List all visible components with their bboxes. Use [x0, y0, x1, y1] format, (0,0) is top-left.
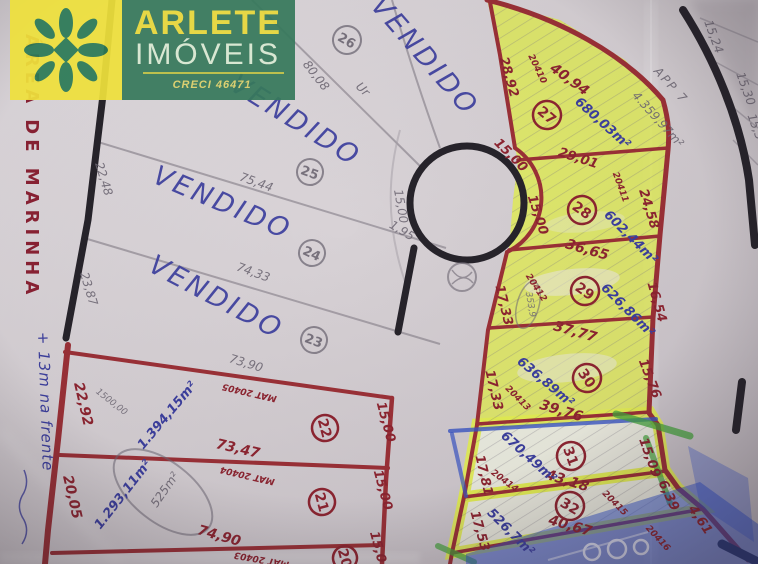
agency-logo: ARLETE IMÓVEIS CRECI 46471	[5, 0, 295, 111]
brand-name-bottom: IMÓVEIS	[135, 38, 281, 71]
plat-map-photo: 80,08 Ur 75,44 74,33 73,90 22,48 23,87 1…	[0, 0, 758, 564]
brand-name-top: ARLETE	[134, 4, 282, 42]
plat-map-svg: 80,08 Ur 75,44 74,33 73,90 22,48 23,87 1…	[0, 0, 758, 564]
creci-number: CRECI 46471	[173, 79, 252, 91]
